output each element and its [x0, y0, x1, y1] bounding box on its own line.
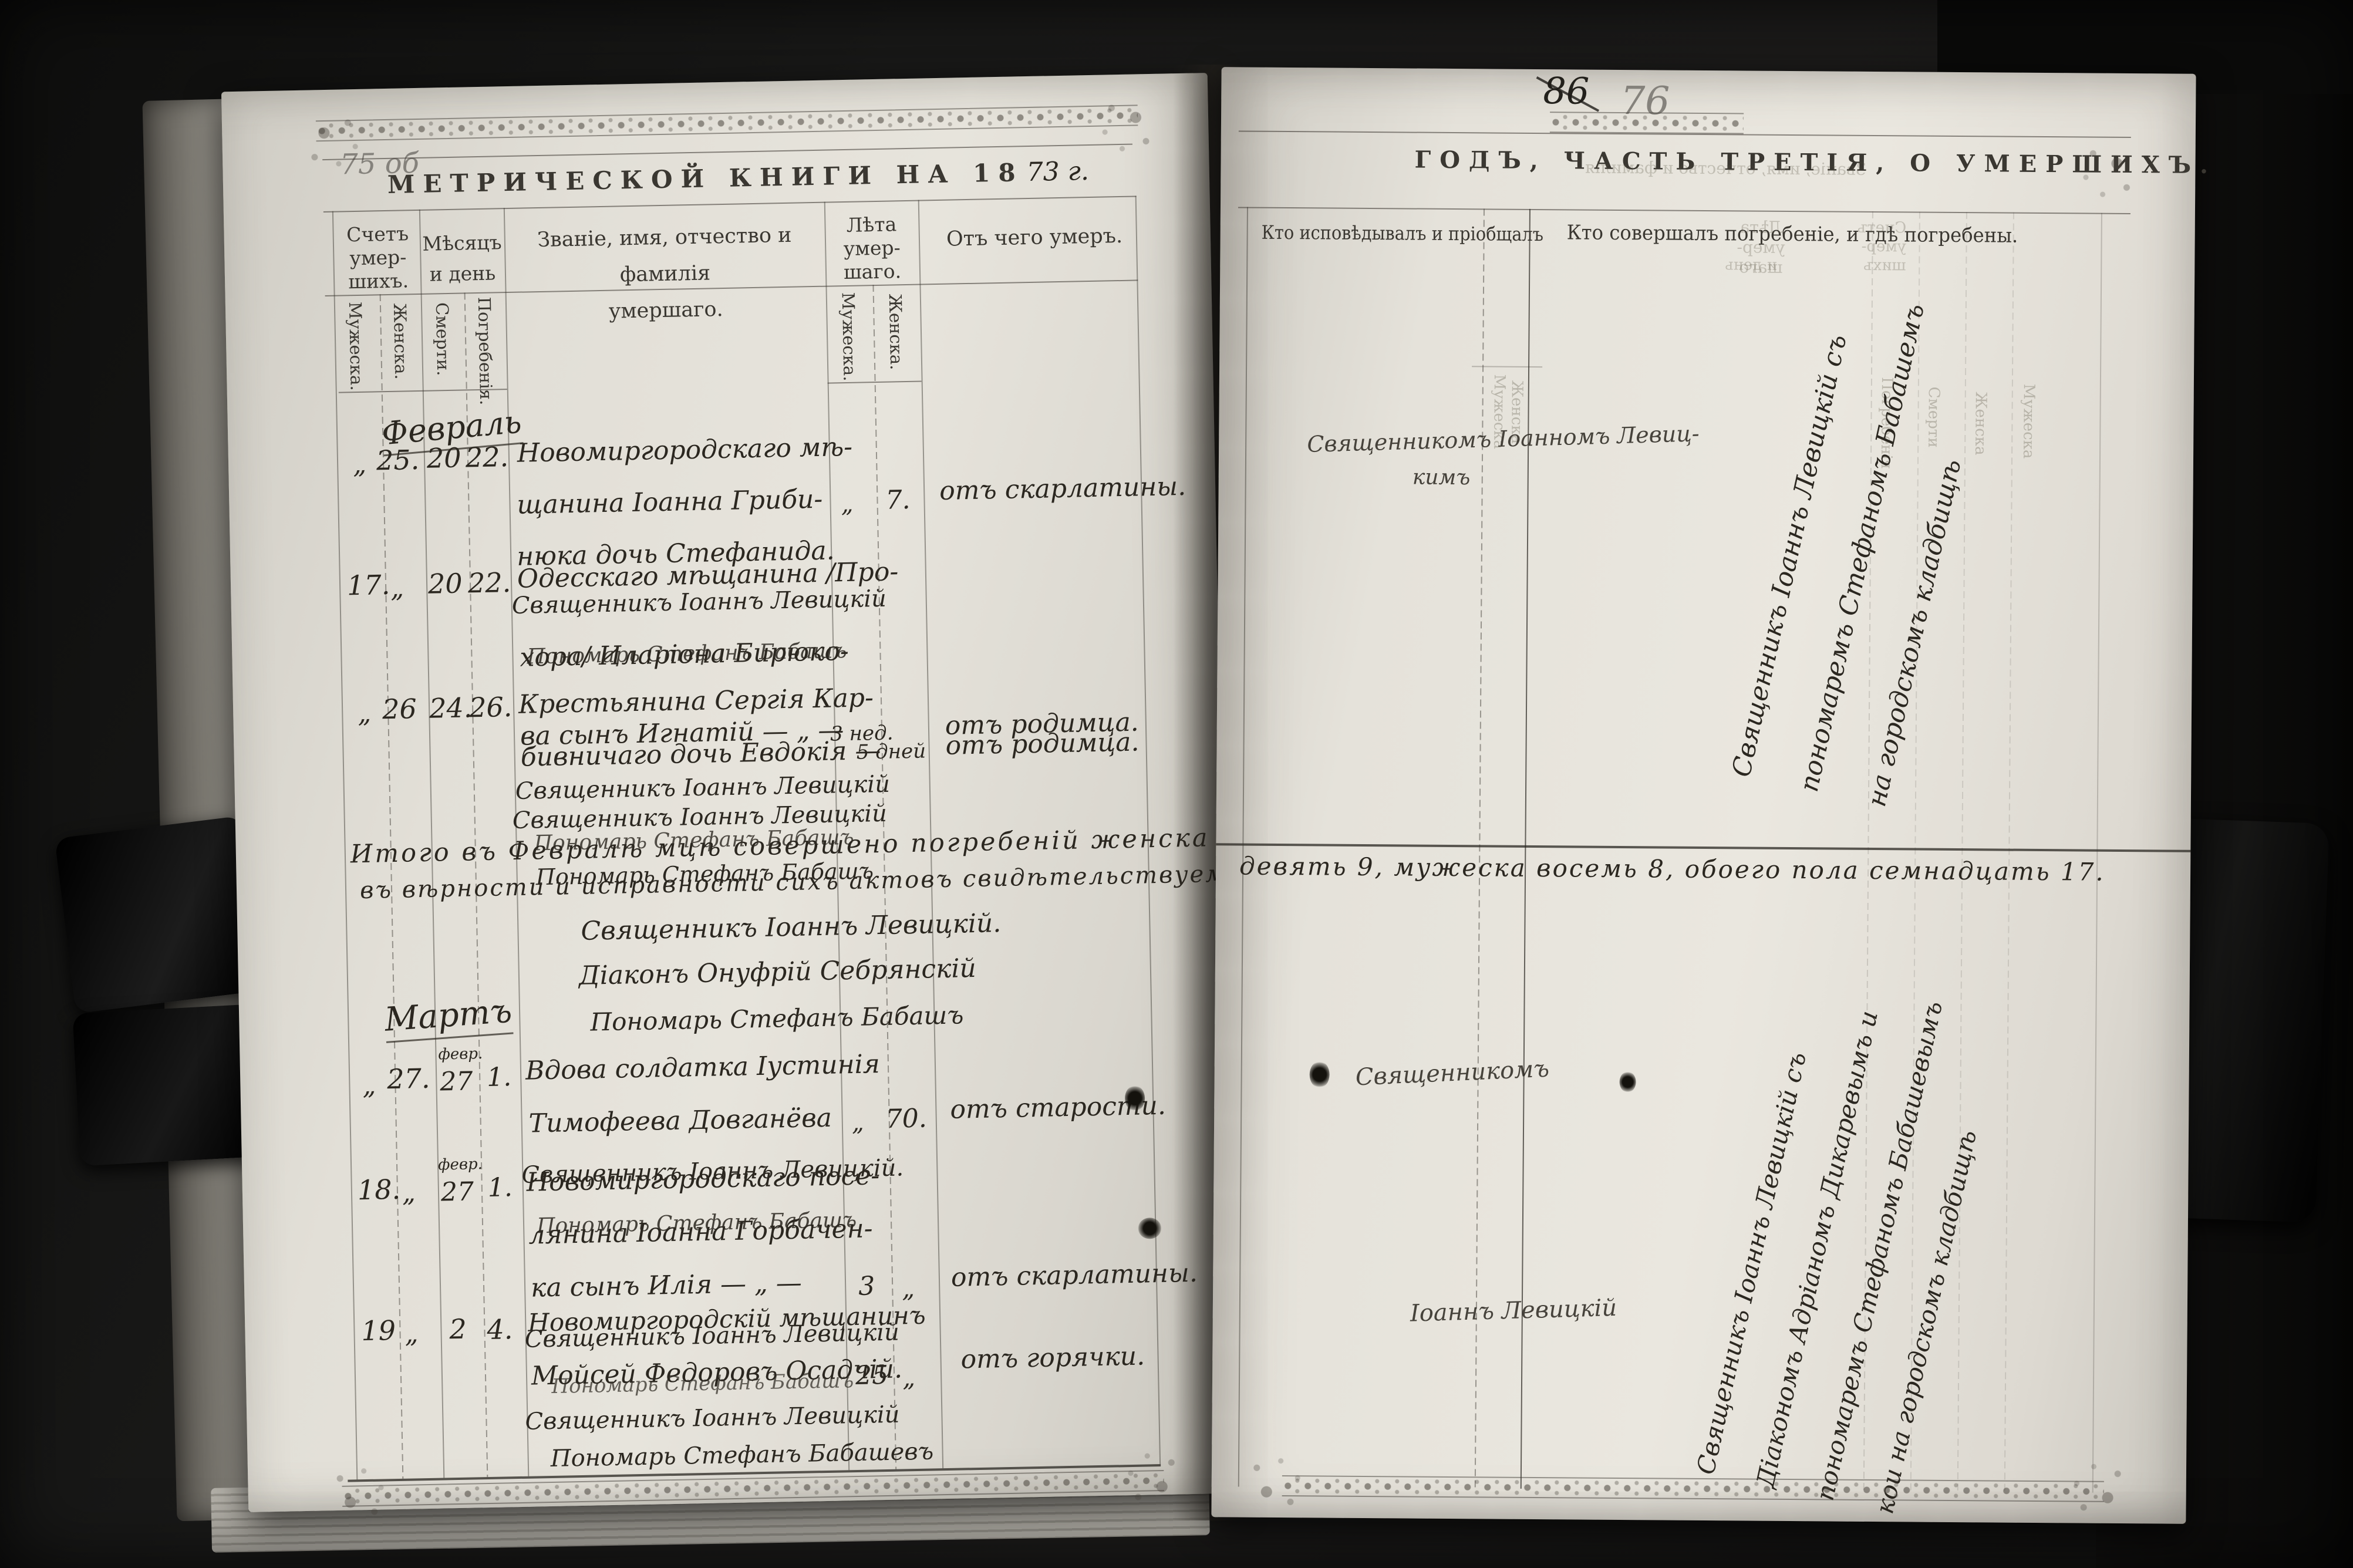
- row-age-female: 70.: [885, 1104, 927, 1134]
- archival-photo: 75 об МЕТРИЧЕСКОЙ КНИГИ НА 18 73 г.: [0, 0, 2353, 1568]
- ornate-border-top: [316, 104, 1138, 141]
- row-day-death: 24.: [429, 692, 473, 724]
- ink-blot: [1138, 1218, 1162, 1239]
- subcol-month-burial: Погребенія.: [474, 296, 497, 405]
- row-priest-signature: Священникъ Іоаннъ Левицкій: [515, 771, 890, 805]
- row-sexton-signature: Пономарь Стефанъ Бабашевъ: [550, 1438, 933, 1472]
- row-num-female: 26: [382, 693, 417, 725]
- row-day-burial: 22.: [468, 566, 511, 599]
- corner-flourish: [1084, 97, 1156, 169]
- page-title-year-handwritten: 73 г.: [1026, 156, 1089, 187]
- col-header-burial: Кто совершалъ погребеніе, и гдѣ погребен…: [1567, 221, 2018, 247]
- row-num-male: „: [358, 699, 372, 729]
- row-day-death: 20: [428, 568, 463, 600]
- entry-confessor-line: кимъ: [1413, 466, 1471, 490]
- row-day-burial: 1.: [487, 1172, 513, 1203]
- book-right-page: 86 76 ГОДЪ, ЧАСТЬ ТРЕТІЯ, О УМЕРШИХЪ. Кт…: [1211, 67, 2196, 1524]
- row-day-burial: 26.: [469, 691, 513, 723]
- col-header-count: Счетъ умер- шихъ.: [335, 222, 420, 294]
- row-name-line: щанина Іоанна Гриби-: [517, 484, 823, 520]
- row-age-male: 3: [858, 1271, 875, 1301]
- row-num-female: „: [402, 1178, 416, 1208]
- folio-number-old: 86: [1543, 69, 1589, 113]
- corner-flourish: [304, 112, 376, 184]
- col-header-name: Званіе, имя, отчество и фамилія умершаго…: [504, 217, 826, 332]
- subcol-month-death: Смерти.: [432, 302, 453, 376]
- row-cause-of-death: отъ горячки.: [960, 1341, 1145, 1375]
- subcol-age-male: Мужеска.: [838, 292, 860, 382]
- row-num-female: „: [390, 574, 404, 603]
- row-num-male: 19: [361, 1314, 396, 1347]
- subcol-age-female: Женска.: [885, 294, 906, 370]
- ghost-subcol-male-2: Мужеска: [2020, 384, 2038, 459]
- row-age-female: 7.: [885, 485, 911, 515]
- paper-hole: [1310, 1061, 1330, 1088]
- row-name-line: лянина Іоанна Горбачен-: [528, 1213, 873, 1250]
- row-day-death: 2: [449, 1313, 467, 1346]
- totals-continuation: девять 9, мужеска восемь 8, обоего пола …: [1239, 851, 2105, 886]
- row-cause-of-death: отъ родимца.: [945, 727, 1140, 761]
- col-header-cause: Отъ чего умеръ.: [946, 224, 1123, 251]
- row-name-line: Новомиргородскаго посе-: [526, 1161, 879, 1198]
- burial-inscription-february: Священникъ Іоаннъ Левицкій съ пономаремъ…: [1707, 282, 2017, 814]
- row-name-line: Вдова солдатка Іустинія: [525, 1049, 881, 1086]
- entry-confessor-line: Священникомъ Іоанномъ Левиц-: [1307, 420, 1700, 457]
- black-clip-left-upper: [55, 816, 262, 1014]
- row-day-burial: 4.: [487, 1313, 513, 1346]
- corner-flourish: [1110, 1435, 1182, 1507]
- row-num-female: „: [404, 1319, 419, 1348]
- col-header-month: Мѣсяцъ и день: [419, 227, 505, 290]
- page-title-printed: МЕТРИЧЕСКОЙ КНИГИ НА 18: [387, 158, 1024, 199]
- paper-hole: [1619, 1071, 1636, 1092]
- ghost-month-label: и день: [1725, 256, 1777, 274]
- row-priest-signature: Священникъ Іоаннъ Левицкій: [525, 1401, 900, 1435]
- row-name-line: Крестьянина Сергія Кар-: [518, 683, 874, 720]
- totals-priest-signature: Священникъ Іоаннъ Левицкій.: [581, 908, 1002, 946]
- row-name-line: бивничаго дочь Евдокія —: [520, 736, 881, 773]
- row-num-male: „: [353, 450, 367, 480]
- row-day-death: 20: [426, 442, 461, 474]
- row-day-death: 27: [440, 1066, 473, 1097]
- corner-flourish: [2066, 143, 2137, 214]
- corner-flourish: [1246, 1441, 1317, 1512]
- ornate-border-bottom: [1282, 1475, 2104, 1502]
- row-num-male: „: [362, 1071, 376, 1101]
- burial-inscription-march: Священникъ Іоаннъ Левицкій съ Діакономъ …: [1676, 969, 2024, 1520]
- row-day-death-month: февр.: [438, 1045, 483, 1063]
- col-header-confessed: Кто исповѣдывалъ и пріобщалъ: [1262, 221, 1544, 245]
- row-age-female: „: [902, 1363, 916, 1392]
- row-name-line: ка сынъ Илія — „ —: [531, 1268, 803, 1303]
- entry-confessor-march-2: Іоаннъ Левицкій: [1410, 1294, 1617, 1327]
- ornate-crest-top: [1550, 112, 1744, 134]
- corner-flourish: [2057, 1446, 2128, 1518]
- row-num-female: 27.: [387, 1063, 430, 1095]
- row-name-line: Тимофеева Довганёва: [528, 1103, 832, 1139]
- row-day-death-month: февр.: [438, 1155, 483, 1174]
- row-name-line: Новомиргородскаго мѣ-: [517, 432, 852, 468]
- row-cause-of-death: отъ скарлатины.: [950, 1258, 1198, 1293]
- row-age-female: 5 дней: [856, 740, 926, 764]
- row-age-male: „: [841, 491, 854, 518]
- page-title: МЕТРИЧЕСКОЙ КНИГИ НА 18 73 г.: [387, 156, 1090, 200]
- row-day-death: 27: [440, 1176, 474, 1207]
- subcol-count-female: Женска.: [390, 303, 411, 380]
- row-day-burial: 1.: [487, 1062, 512, 1092]
- month-heading-march: Мартъ: [383, 992, 514, 1043]
- book-left-page: 75 об МЕТРИЧЕСКОЙ КНИГИ НА 18 73 г.: [221, 73, 1235, 1512]
- col-header-age: Лѣта умер- шаго.: [824, 213, 919, 285]
- row-age-female: „: [902, 1274, 915, 1303]
- corner-flourish: [329, 1451, 401, 1522]
- row-age-male: „: [851, 1110, 864, 1137]
- row-num-male: 18.: [357, 1174, 400, 1206]
- entry-confessor-march: Священникомъ: [1355, 1056, 1550, 1091]
- row-cause-of-death: отъ скарлатины.: [939, 471, 1186, 506]
- row-num-male: 17.: [347, 569, 390, 601]
- row-day-burial: 22.: [465, 441, 508, 473]
- subcol-count-male: Мужеска.: [345, 302, 367, 391]
- row-name-line: хора/ Иларіона Бирюко-: [520, 636, 849, 673]
- totals-deacon-signature: Діаконъ Онуфрій Себрянскій: [578, 953, 976, 991]
- row-num-female: 25.: [376, 444, 420, 476]
- row-age-male: 25: [855, 1360, 889, 1391]
- totals-sexton-signature: Пономарь Стефанъ Бабашъ: [590, 1000, 964, 1036]
- ghost-name-label: Званіе, имя, отчество и фамилія: [1585, 158, 1866, 179]
- ghost-count-label: Счетъ умер- шихъ: [1857, 218, 1906, 275]
